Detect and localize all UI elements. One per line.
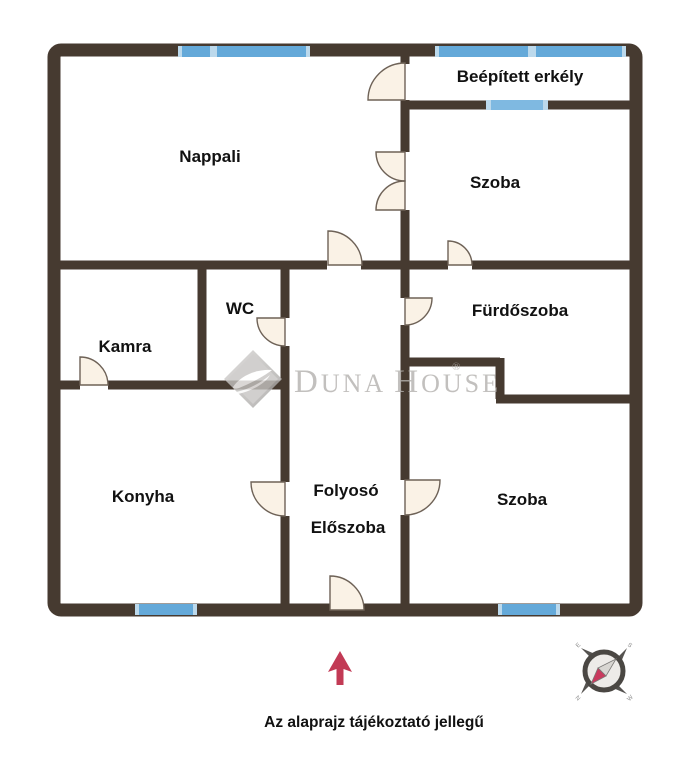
room-labels: Nappali Beépített erkély Szoba WC Kamra …	[99, 67, 584, 537]
window-nappali	[178, 46, 310, 57]
door-entrance	[330, 576, 364, 610]
door-konyha	[251, 482, 285, 516]
north-arrow-icon	[328, 651, 352, 685]
compass-letter-sw: N	[574, 695, 581, 702]
registered-mark: ®	[452, 361, 463, 373]
room-label-eloszoba: Előszoba	[311, 518, 386, 537]
duna-house-logo-icon	[224, 350, 282, 408]
door-double-nappali-szoba-top	[376, 152, 405, 181]
floorplan-canvas: DUNA HOUSE ® Nappali Beépített erkély Sz…	[0, 0, 681, 768]
window-erkely	[435, 46, 626, 57]
door-wc	[257, 318, 285, 346]
room-label-konyha: Konyha	[112, 487, 175, 506]
window-szoba-also	[498, 604, 560, 615]
room-label-folyoso: Folyosó	[313, 481, 378, 500]
door-double-nappali-szoba-bottom	[376, 181, 405, 210]
compass-letter-se: W	[627, 694, 635, 702]
door-nappali-erkely	[368, 63, 405, 100]
room-label-kamra: Kamra	[99, 337, 152, 356]
compass-icon: S E N W	[574, 642, 635, 703]
room-label-furdoszoba: Fürdőszoba	[472, 301, 569, 320]
door-kamra	[80, 357, 108, 385]
room-label-szoba-felso: Szoba	[470, 173, 521, 192]
window-erkely-szoba	[486, 100, 548, 110]
door-szoba-furdoszoba	[448, 241, 472, 265]
room-label-szoba-also: Szoba	[497, 490, 548, 509]
room-label-beepitett-erkely: Beépített erkély	[457, 67, 584, 86]
watermark-text: DUNA HOUSE	[294, 364, 501, 400]
window-konyha	[135, 604, 197, 615]
door-furdoszoba	[405, 298, 432, 325]
room-label-nappali: Nappali	[179, 147, 240, 166]
caption: Az alaprajz tájékoztató jellegű	[264, 714, 484, 731]
room-label-wc: WC	[226, 299, 254, 318]
door-nappali-folyoso	[328, 231, 362, 265]
door-szoba-also	[405, 480, 440, 515]
